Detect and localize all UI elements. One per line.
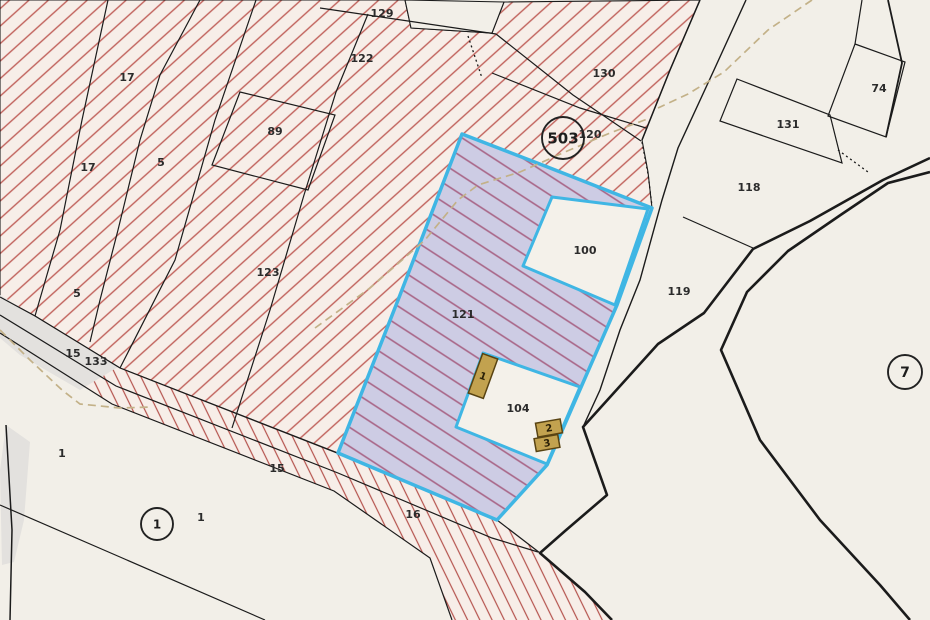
parcel-label-121: 121 xyxy=(452,308,475,321)
parcel-label-133: 133 xyxy=(85,355,108,368)
parcel-label-5: 5 xyxy=(157,156,165,169)
parcel-label-119: 119 xyxy=(668,285,691,298)
parcel-label-17: 17 xyxy=(80,161,95,174)
parcel-label-74: 74 xyxy=(871,82,887,95)
circled-label-7-text: 7 xyxy=(900,365,910,381)
parcel-label-100: 100 xyxy=(574,244,597,257)
parcel-label-89: 89 xyxy=(267,125,282,138)
parcel-label-104: 104 xyxy=(507,402,530,415)
parcel-label-123: 123 xyxy=(257,266,280,279)
map-canvas[interactable]: 123 171755891221291231301201211001041191… xyxy=(0,0,930,620)
circled-label-1-text: 1 xyxy=(153,517,161,531)
parcel-label-131: 131 xyxy=(777,118,800,131)
parcel-label-15: 15 xyxy=(65,347,80,360)
parcel-label-129: 129 xyxy=(371,7,394,20)
parcel-label-1: 1 xyxy=(197,511,205,524)
parcel-label-1: 1 xyxy=(58,447,66,460)
parcel-label-15: 15 xyxy=(269,462,284,475)
cadastral-map-stage: 123 171755891221291231301201211001041191… xyxy=(0,0,930,620)
parcel-label-122: 122 xyxy=(351,52,374,65)
circled-label-503-text: 503 xyxy=(547,129,578,147)
parcel-label-16: 16 xyxy=(405,508,421,521)
parcel-label-17: 17 xyxy=(119,71,134,84)
parcel-label-130: 130 xyxy=(593,67,616,80)
parcel-label-118: 118 xyxy=(738,181,761,194)
parcel-label-5: 5 xyxy=(73,287,81,300)
